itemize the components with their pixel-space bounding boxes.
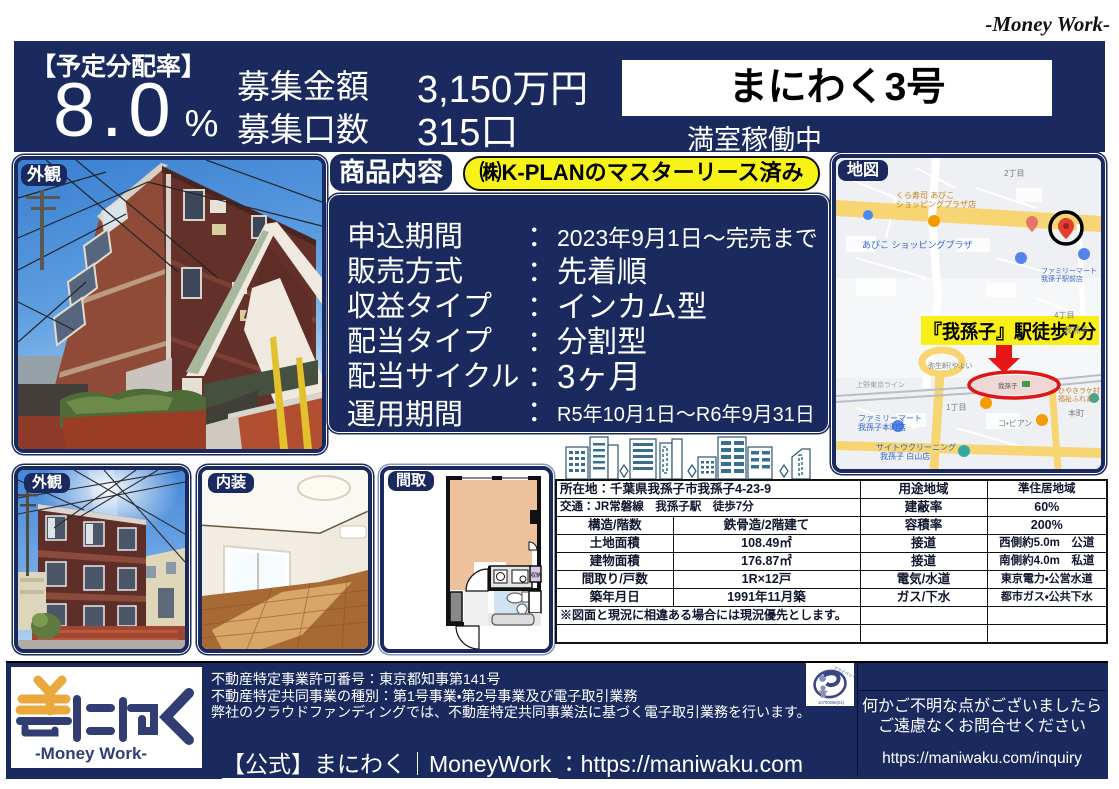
svg-text:あびこ ショッピングプラザ: あびこ ショッピングプラザ [862, 239, 973, 250]
svg-text:我孫子: 我孫子 [1064, 325, 1088, 335]
svg-text:我孫子駅前店: 我孫子駅前店 [1041, 274, 1083, 283]
svg-text:ファミリーマート: ファミリーマート [1041, 267, 1097, 275]
svg-text:上野東京ライン: 上野東京ライン [856, 380, 905, 389]
svg-text:我孫子本町店: 我孫子本町店 [858, 422, 906, 432]
svg-text:1丁目: 1丁目 [946, 403, 966, 412]
svg-text:2丁目: 2丁目 [1004, 169, 1024, 178]
svg-text:ファミリーマート: ファミリーマート [858, 414, 922, 423]
svg-text:サイトウクリーニング: サイトウクリーニング [876, 442, 956, 452]
svg-text:福祉ふれあい: 福祉ふれあい [1058, 394, 1100, 403]
svg-text:コ・ビアン: コ・ビアン [998, 419, 1032, 428]
svg-text:くら寿司 あびこ: くら寿司 あびこ [896, 190, 954, 200]
svg-text:我孫子 白山店: 我孫子 白山店 [880, 451, 930, 461]
svg-text:ショッピングプラザ店: ショッピングプラザ店 [896, 199, 976, 209]
svg-text:4丁目: 4丁目 [1054, 311, 1074, 320]
svg-text:本町: 本町 [1068, 408, 1084, 418]
svg-text:-Money Work-: -Money Work- [35, 744, 147, 763]
svg-text:ひやきラケ村: ひやきラケ村 [1058, 386, 1100, 395]
svg-text:我孫子: 我孫子 [998, 381, 1018, 390]
svg-text:10700066(01): 10700066(01) [818, 700, 845, 705]
svg-text:収納: 収納 [531, 571, 543, 579]
svg-text:弥生軒(やよい: 弥生軒(やよい [928, 361, 972, 370]
